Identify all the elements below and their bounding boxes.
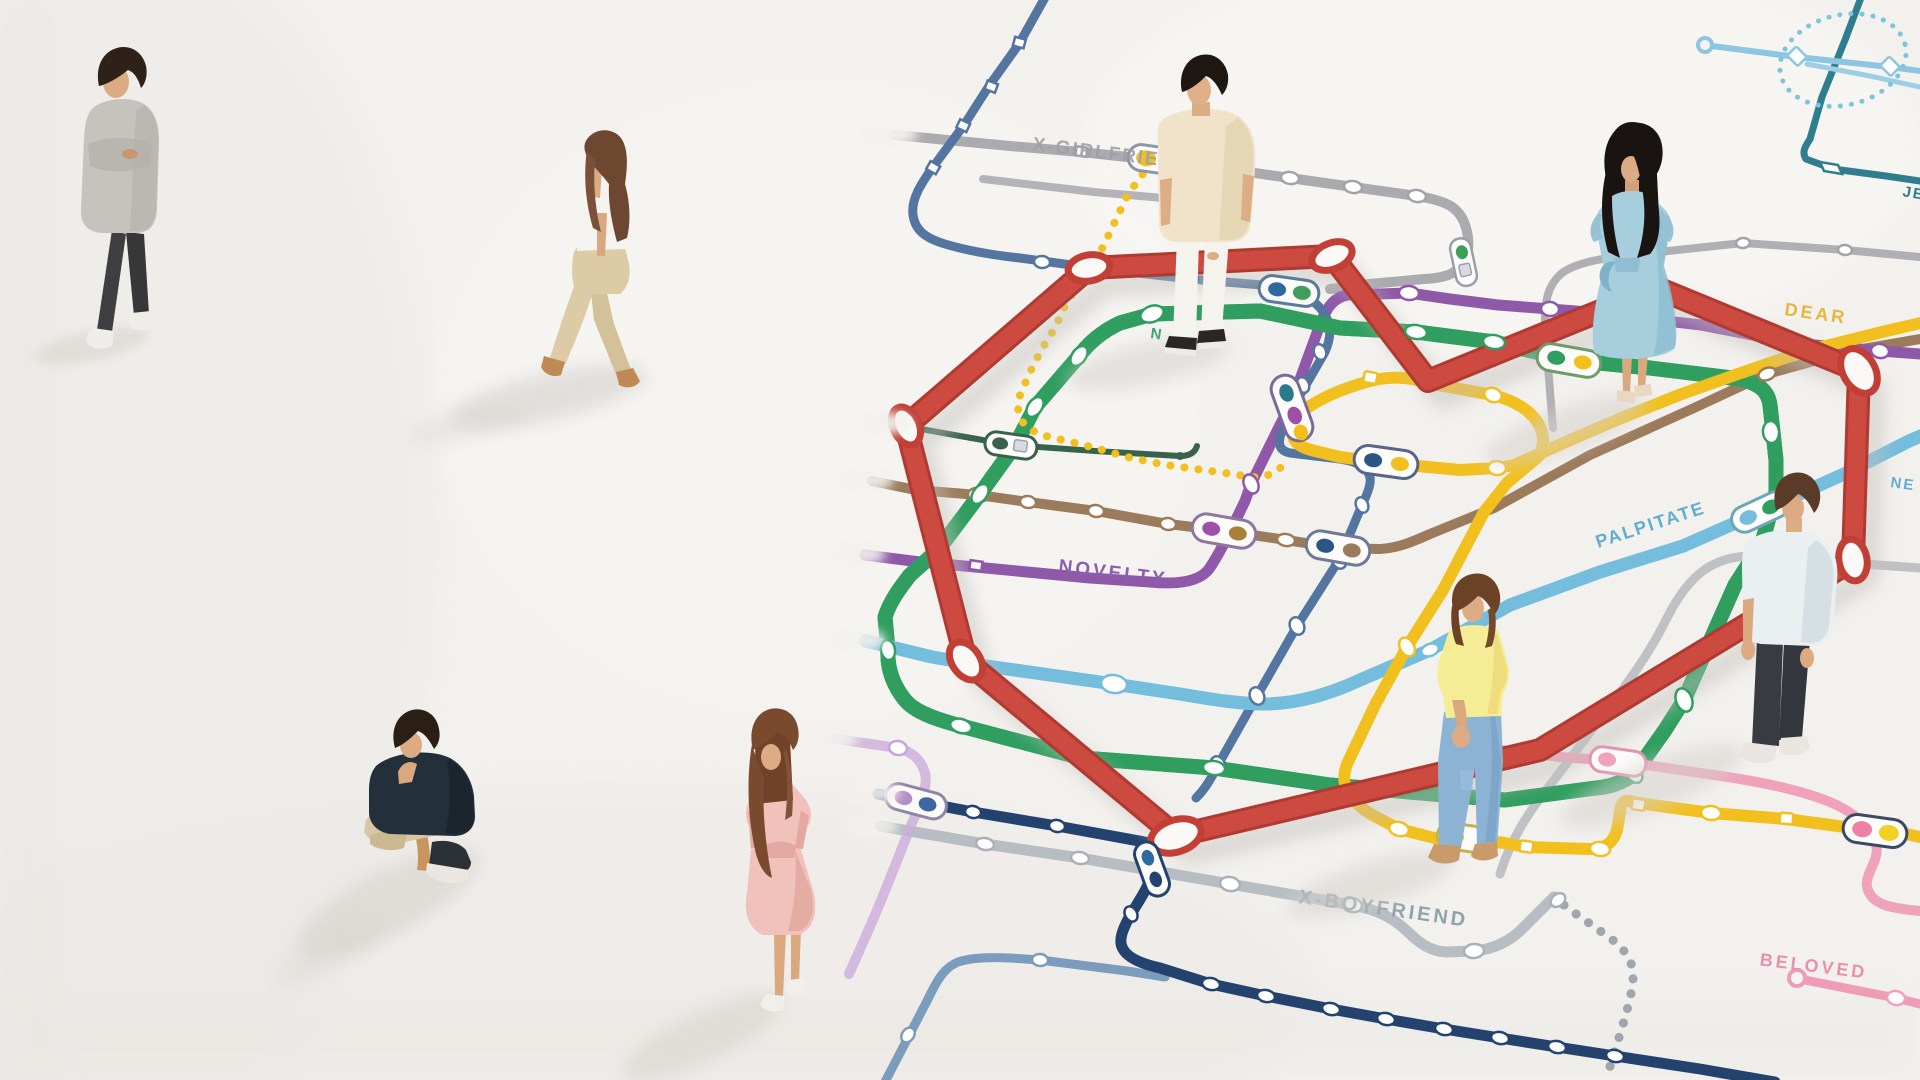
svg-text:NE: NE xyxy=(1889,474,1916,494)
